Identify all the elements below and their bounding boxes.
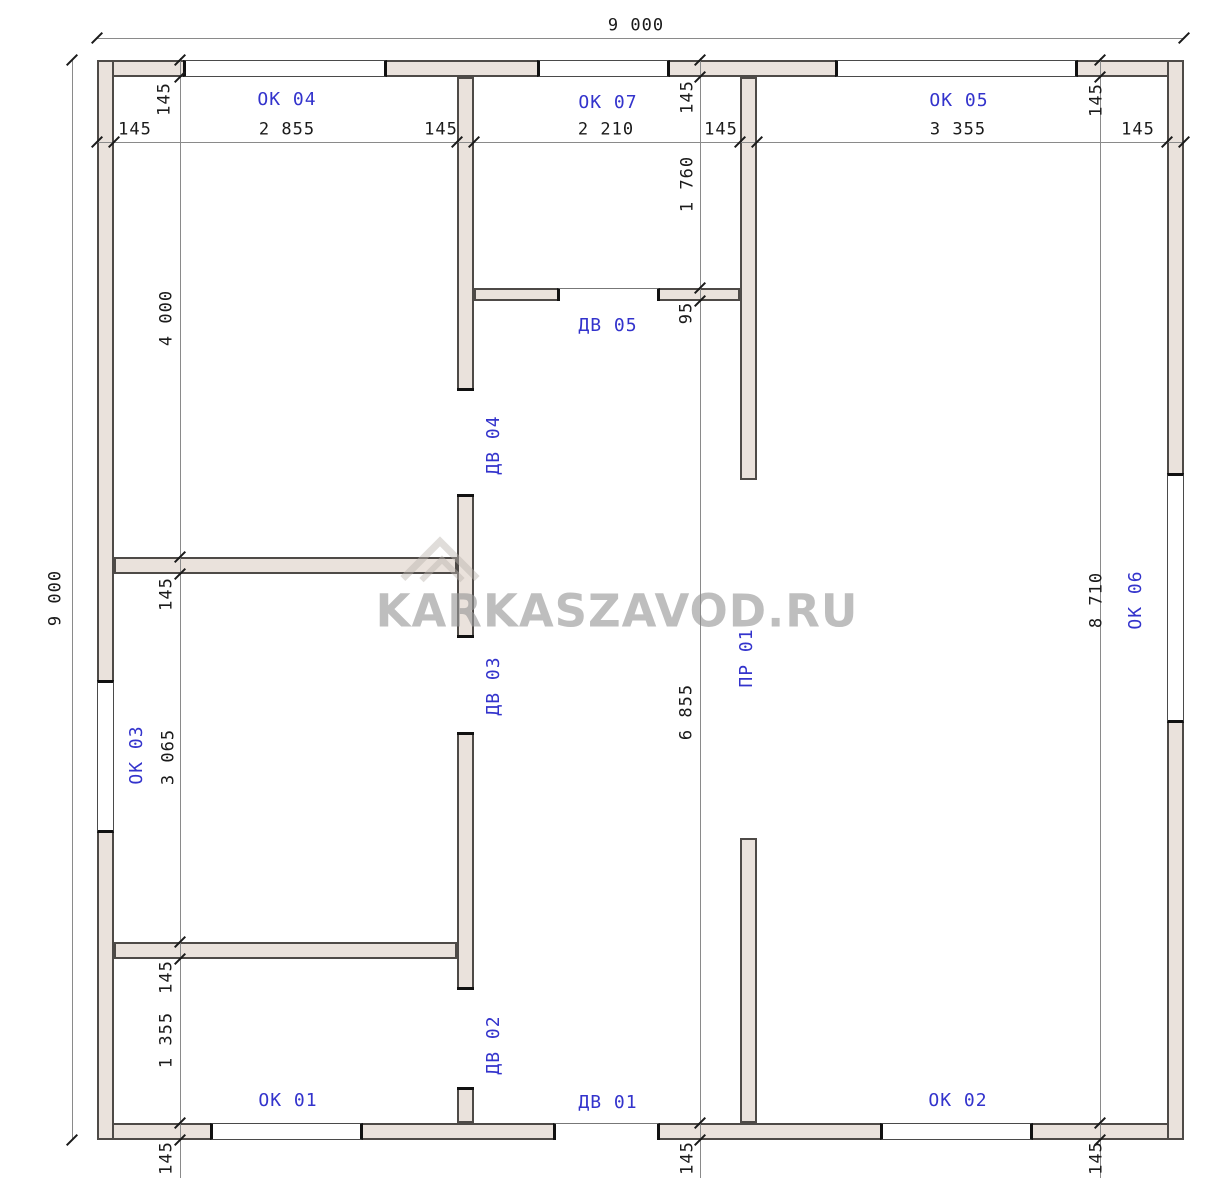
feature-label: ОК 02 bbox=[928, 1092, 987, 1110]
feature-label: ДВ 02 bbox=[485, 1015, 503, 1074]
feature-label: ДВ 03 bbox=[485, 656, 503, 715]
dimension-label: 145 bbox=[159, 577, 176, 611]
dimension-label: 9 000 bbox=[48, 570, 65, 626]
dimension-label: 4 000 bbox=[159, 290, 176, 346]
dimension-label: 145 bbox=[159, 1141, 176, 1175]
dimension-label: 145 bbox=[1121, 122, 1155, 139]
feature-label: ОК 05 bbox=[929, 92, 988, 110]
floor-plan-canvas: KARKASZAVOD.RU 9 0009 0001452 8551452 21… bbox=[0, 0, 1211, 1200]
feature-label: ОК 07 bbox=[578, 94, 637, 112]
dimension-label: 145 bbox=[680, 1141, 697, 1175]
feature-label: ПР 01 bbox=[738, 628, 756, 687]
dimension-label: 145 bbox=[680, 80, 697, 114]
dimension-label: 2 210 bbox=[578, 122, 634, 139]
dimension-label: 145 bbox=[424, 122, 458, 139]
dimension-label: 2 855 bbox=[259, 122, 315, 139]
dimension-label: 145 bbox=[1089, 1141, 1106, 1175]
dimension-label: 145 bbox=[118, 122, 152, 139]
dimension-label: 1 355 bbox=[159, 1012, 176, 1068]
dimension-label: 6 855 bbox=[679, 684, 696, 740]
feature-label: ДВ 05 bbox=[578, 317, 637, 335]
dimension-label: 3 355 bbox=[930, 122, 986, 139]
dimension-label: 95 bbox=[679, 302, 696, 324]
dimension-label: 145 bbox=[159, 960, 176, 994]
feature-label: ДВ 01 bbox=[578, 1094, 637, 1112]
dimension-label: 1 760 bbox=[680, 156, 697, 212]
feature-label: ОК 03 bbox=[128, 725, 146, 784]
dimension-label: 145 bbox=[1089, 83, 1106, 117]
dimension-label: 145 bbox=[704, 122, 738, 139]
feature-label: ОК 01 bbox=[258, 1092, 317, 1110]
dimension-label: 8 710 bbox=[1089, 572, 1106, 628]
dimension-label: 145 bbox=[157, 82, 174, 116]
feature-label: ОК 04 bbox=[257, 91, 316, 109]
labels-layer: 9 0009 0001452 8551452 2101453 355145145… bbox=[0, 0, 1211, 1200]
feature-label: ОК 06 bbox=[1127, 570, 1145, 629]
dimension-label: 3 065 bbox=[161, 729, 178, 785]
feature-label: ДВ 04 bbox=[485, 415, 503, 474]
dimension-label: 9 000 bbox=[608, 18, 664, 35]
